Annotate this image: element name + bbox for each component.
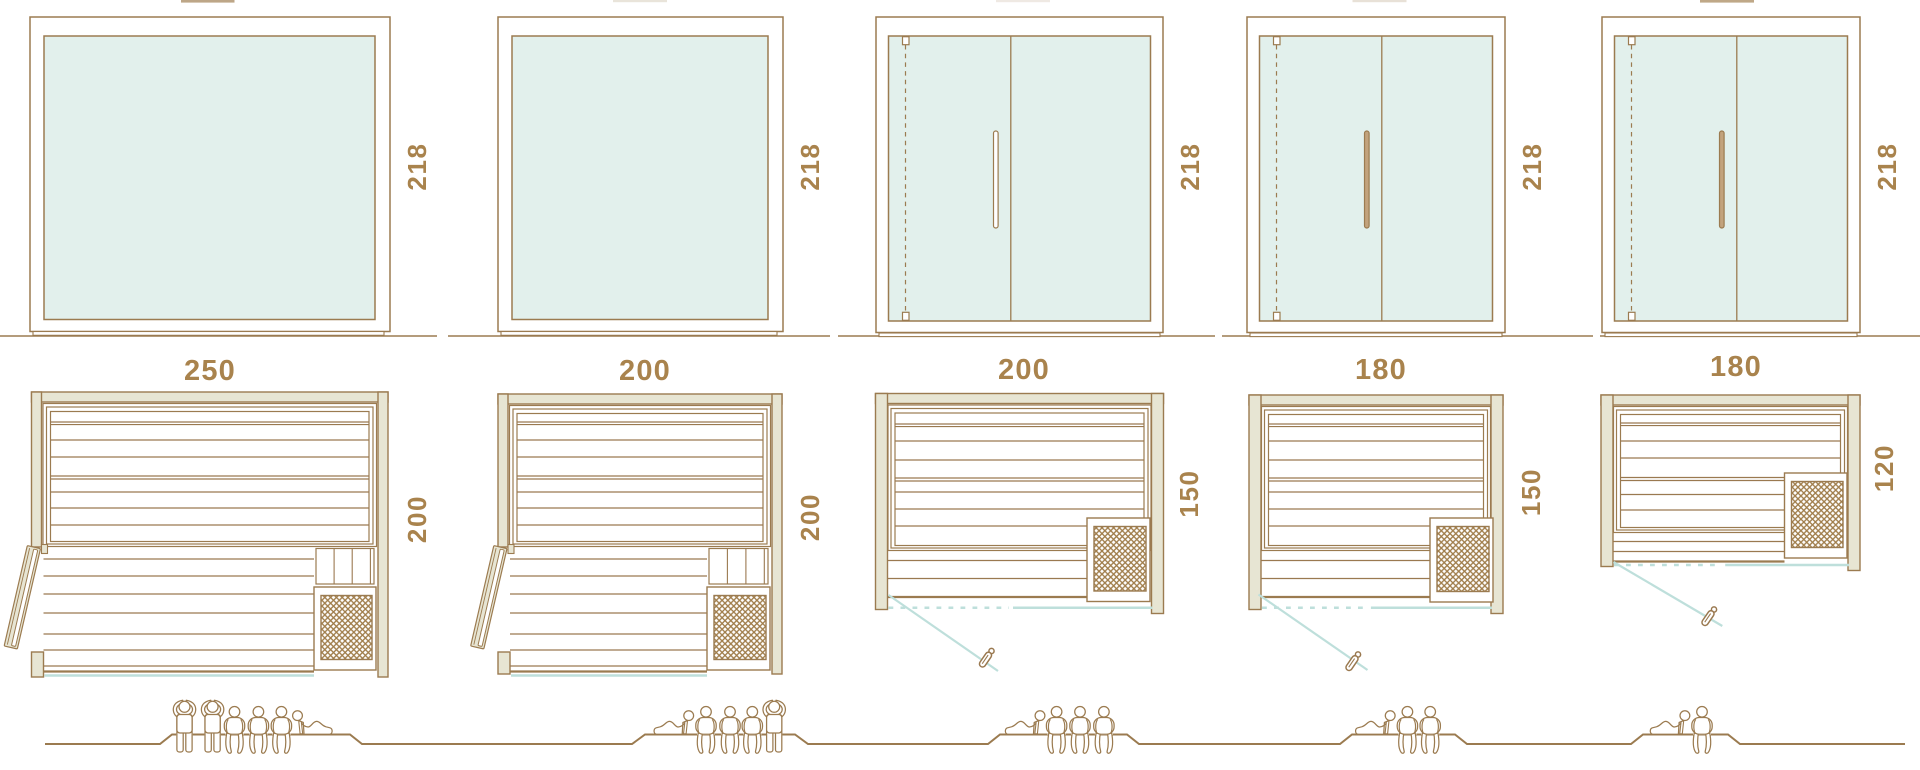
svg-text:200: 200 bbox=[998, 354, 1050, 386]
svg-text:120: 120 bbox=[1869, 444, 1899, 492]
svg-text:180: 180 bbox=[1710, 351, 1762, 383]
svg-text:150: 150 bbox=[1174, 469, 1204, 517]
svg-text:250: 250 bbox=[184, 355, 236, 387]
svg-text:218: 218 bbox=[402, 142, 432, 190]
svg-text:180: 180 bbox=[1355, 354, 1407, 386]
svg-text:200: 200 bbox=[619, 355, 671, 387]
svg-text:218: 218 bbox=[1175, 142, 1205, 190]
svg-text:200: 200 bbox=[795, 493, 825, 541]
svg-text:218: 218 bbox=[1517, 142, 1547, 190]
svg-text:200: 200 bbox=[402, 495, 432, 543]
svg-text:218: 218 bbox=[1872, 142, 1902, 190]
svg-text:218: 218 bbox=[795, 142, 825, 190]
svg-text:150: 150 bbox=[1516, 468, 1546, 516]
